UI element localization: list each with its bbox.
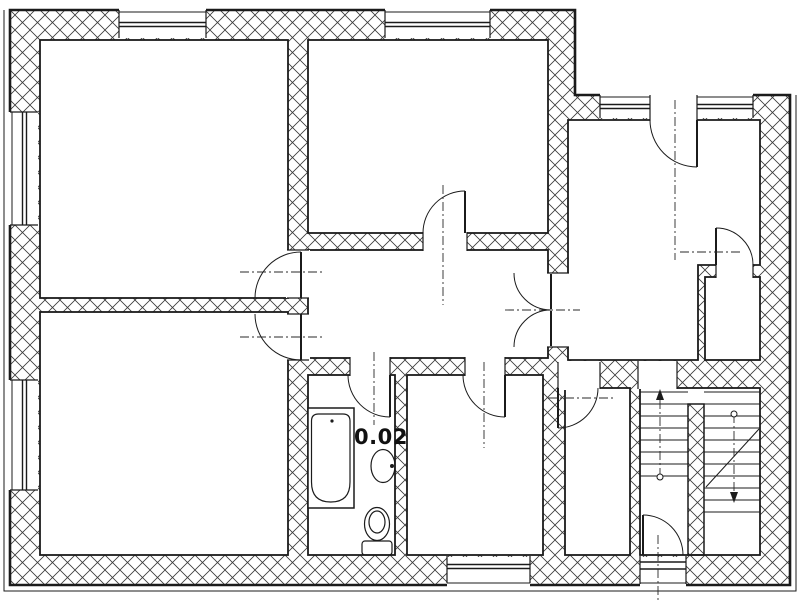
window-left-lower [8, 380, 38, 490]
hallway [308, 250, 548, 358]
opening-balcony-door [650, 93, 697, 122]
opening-bottom-middle-room [465, 356, 505, 377]
floor-plan-canvas: 0.02 [0, 0, 800, 600]
room-number-label: 0.02 [354, 425, 408, 449]
opening-bathroom [350, 356, 390, 377]
opening-corridor-room-door [558, 361, 600, 390]
floor-plan-drawing: 0.02 [0, 0, 800, 600]
window-left-upper [8, 112, 38, 225]
opening-entrance-door [640, 556, 686, 588]
bathtub-icon [308, 408, 354, 508]
opening-closet-door [716, 263, 753, 279]
stair-middle-wall [688, 404, 704, 555]
window-bottom [447, 556, 530, 588]
window-top-left [119, 8, 206, 38]
room-top-left [40, 40, 288, 298]
corridor-room [565, 388, 630, 555]
room-bottom-middle [407, 375, 543, 555]
room-top-middle [308, 40, 548, 233]
opening-stair-passage [638, 361, 677, 389]
opening-top-left-room [286, 250, 310, 298]
room-bottom-left [40, 312, 288, 555]
opening-top-middle-room [423, 231, 467, 252]
window-top-middle [385, 8, 490, 38]
closet-room [705, 277, 760, 360]
